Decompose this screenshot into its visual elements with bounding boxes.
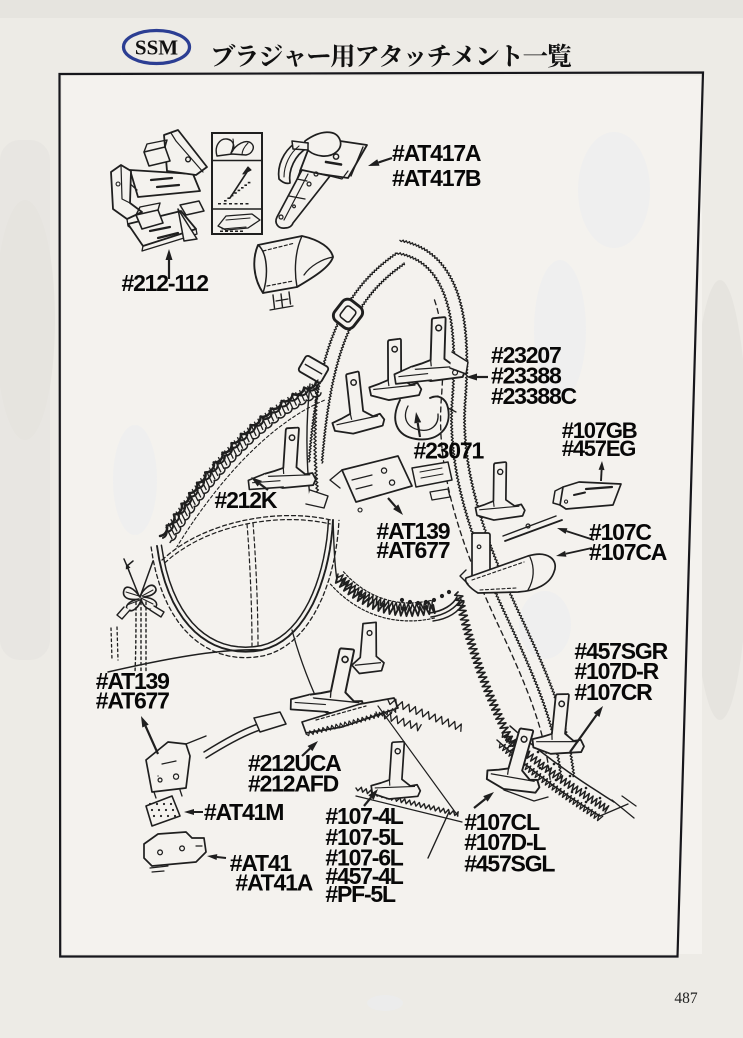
svg-text:#212-112: #212-112 (122, 270, 209, 296)
svg-text:#AT41A: #AT41A (235, 870, 312, 896)
svg-text:#457SGL: #457SGL (464, 851, 555, 877)
svg-text:#457EG: #457EG (562, 436, 636, 461)
svg-text:SSM: SSM (135, 36, 178, 60)
svg-text:#AT677: #AT677 (96, 688, 169, 714)
svg-text:#AT417A: #AT417A (392, 140, 481, 166)
svg-text:487: 487 (674, 990, 698, 1007)
svg-text:#107CR: #107CR (574, 679, 653, 705)
svg-text:#AT417B: #AT417B (392, 165, 481, 191)
svg-text:#AT677: #AT677 (376, 537, 449, 563)
svg-text:#212AFD: #212AFD (248, 771, 339, 797)
svg-text:#23071: #23071 (414, 438, 485, 464)
svg-text:#107CA: #107CA (589, 539, 667, 565)
svg-text:#AT41M: #AT41M (204, 799, 283, 825)
svg-text:#PF-5L: #PF-5L (325, 881, 396, 907)
svg-text:#212K: #212K (215, 487, 278, 513)
svg-text:#23388C: #23388C (491, 383, 577, 409)
